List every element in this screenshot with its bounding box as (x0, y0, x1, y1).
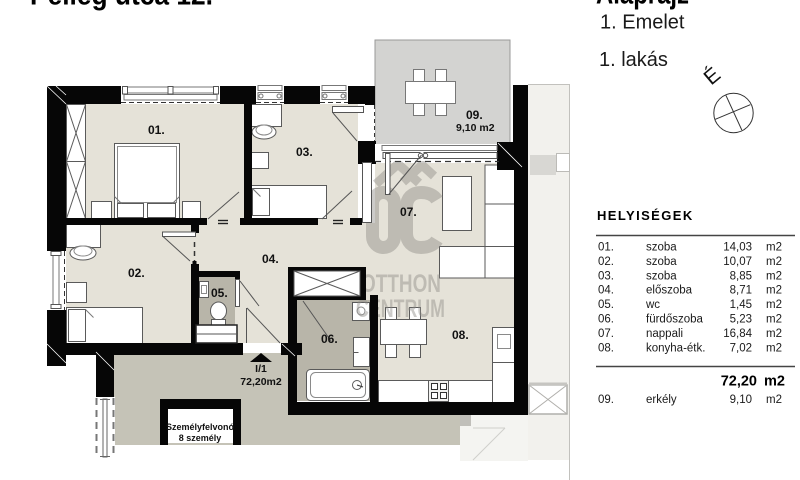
svg-text:m2: m2 (766, 242, 782, 254)
svg-text:HELYISÉGEK: HELYISÉGEK (597, 208, 694, 223)
svg-text:1. lakás: 1. lakás (599, 49, 668, 71)
svg-text:02.: 02. (128, 266, 145, 280)
svg-text:07.: 07. (400, 205, 417, 219)
svg-text:06.: 06. (598, 314, 614, 326)
svg-text:8 személy: 8 személy (179, 433, 222, 443)
svg-text:7,02: 7,02 (730, 342, 752, 354)
svg-text:05.: 05. (598, 299, 614, 311)
svg-text:03.: 03. (598, 270, 614, 282)
svg-text:04.: 04. (262, 252, 279, 266)
svg-text:nappali: nappali (646, 328, 683, 340)
svg-text:m2: m2 (766, 256, 782, 268)
svg-text:wc: wc (645, 299, 660, 311)
svg-text:02.: 02. (598, 256, 614, 268)
svg-text:09.: 09. (466, 108, 483, 122)
svg-text:05.: 05. (211, 286, 228, 300)
svg-text:fürdőszoba: fürdőszoba (646, 314, 704, 326)
svg-text:72,20: 72,20 (721, 374, 757, 390)
svg-text:m2: m2 (766, 314, 782, 326)
svg-text:m2: m2 (766, 299, 782, 311)
svg-text:08.: 08. (598, 342, 614, 354)
svg-text:10,07: 10,07 (723, 256, 752, 268)
svg-text:m2: m2 (764, 374, 785, 390)
svg-text:03.: 03. (296, 145, 313, 159)
svg-text:14,03: 14,03 (723, 242, 752, 254)
svg-text:08.: 08. (452, 328, 469, 342)
svg-text:m2: m2 (766, 285, 782, 297)
svg-text:szoba: szoba (646, 256, 677, 268)
svg-text:CENTRUM: CENTRUM (356, 295, 445, 323)
svg-text:m2: m2 (766, 328, 782, 340)
svg-text:09.: 09. (598, 394, 614, 406)
svg-text:9,10 m2: 9,10 m2 (456, 122, 495, 134)
svg-text:06.: 06. (321, 332, 338, 346)
svg-text:I/1: I/1 (255, 363, 267, 375)
svg-text:04.: 04. (598, 285, 614, 297)
svg-text:01.: 01. (148, 123, 165, 137)
svg-text:16,84: 16,84 (723, 328, 752, 340)
svg-text:m2: m2 (766, 342, 782, 354)
svg-text:9,10: 9,10 (730, 394, 752, 406)
svg-text:m2: m2 (766, 394, 782, 406)
svg-text:07.: 07. (598, 328, 614, 340)
svg-text:szoba: szoba (646, 242, 677, 254)
svg-text:01.: 01. (598, 242, 614, 254)
svg-text:72,20m2: 72,20m2 (240, 376, 282, 388)
svg-text:Alaprajz: Alaprajz (596, 0, 689, 11)
svg-text:5,23: 5,23 (730, 314, 752, 326)
svg-text:1. Emelet: 1. Emelet (600, 12, 685, 34)
svg-text:Személyfelvonó: Személyfelvonó (166, 422, 235, 432)
svg-text:előszoba: előszoba (646, 285, 693, 297)
svg-text:m2: m2 (766, 270, 782, 282)
svg-text:szoba: szoba (646, 270, 677, 282)
svg-text:Pellég utca 12.: Pellég utca 12. (30, 0, 213, 12)
svg-text:1,45: 1,45 (730, 299, 752, 311)
svg-text:konyha-étk.: konyha-étk. (646, 342, 705, 354)
svg-text:erkély: erkély (646, 394, 677, 406)
svg-text:8,71: 8,71 (730, 285, 752, 297)
svg-text:OTTHON: OTTHON (361, 270, 441, 298)
svg-text:8,85: 8,85 (730, 270, 752, 282)
